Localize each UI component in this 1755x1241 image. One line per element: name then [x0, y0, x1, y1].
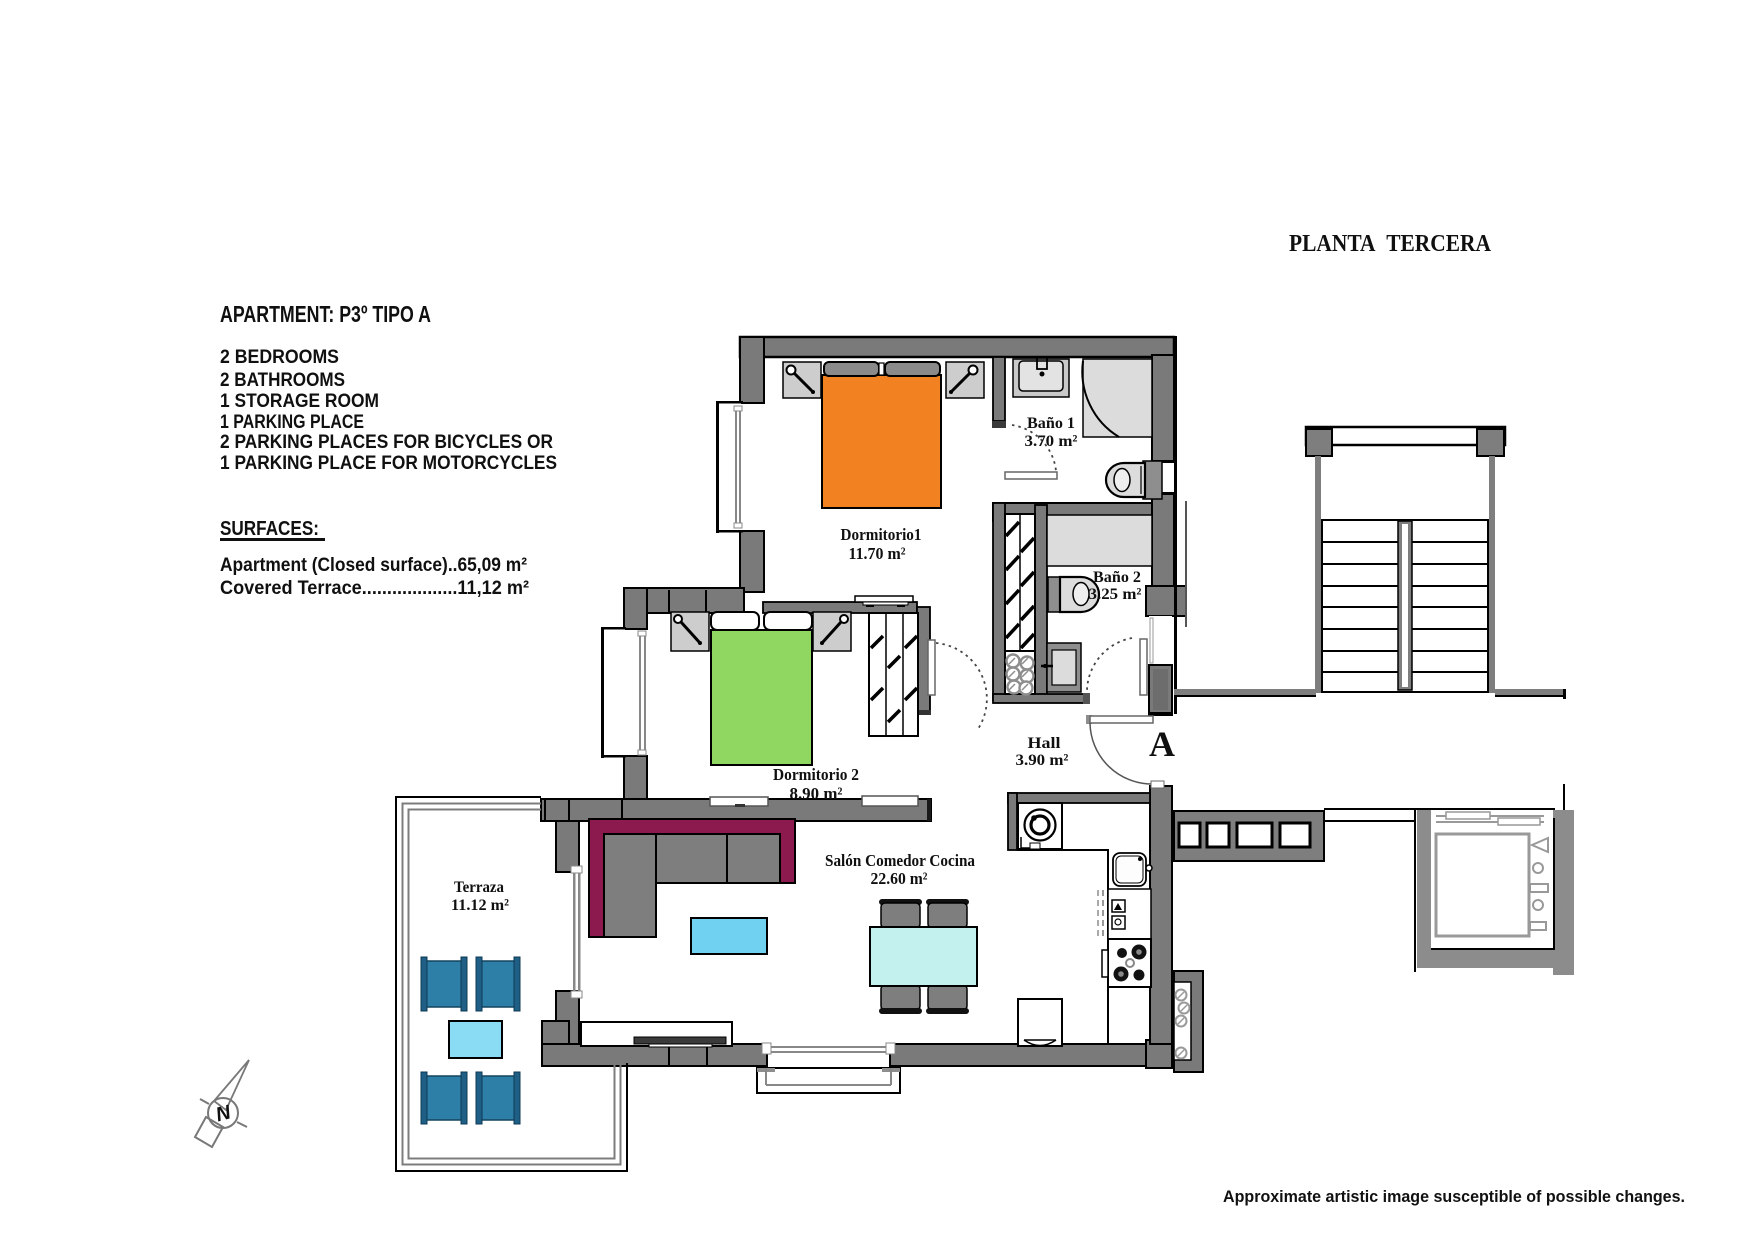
svg-text:A: A [1149, 724, 1175, 764]
svg-text:8.90 m²: 8.90 m² [790, 784, 843, 803]
svg-text:Approximate artistic image sus: Approximate artistic image susceptible o… [1223, 1187, 1685, 1206]
svg-text:Apartment (Closed surface)..65: Apartment (Closed surface)..65,09 m² [220, 555, 527, 576]
svg-text:Terraza: Terraza [454, 879, 504, 896]
svg-text:Dormitorio 2: Dormitorio 2 [773, 765, 859, 784]
svg-text:Baño 2: Baño 2 [1093, 569, 1141, 586]
svg-text:APARTMENT: P3º TIPO A: APARTMENT: P3º TIPO A [220, 301, 431, 327]
svg-text:1 PARKING PLACE FOR MOTORCYCLE: 1 PARKING PLACE FOR MOTORCYCLES [220, 453, 557, 474]
svg-text:22.60 m²: 22.60 m² [871, 869, 928, 888]
svg-text:SURFACES:: SURFACES: [220, 518, 319, 540]
svg-text:Covered Terrace...............: Covered Terrace...................11,12 … [220, 578, 529, 599]
svg-text:2 PARKING PLACES FOR BICYCLES: 2 PARKING PLACES FOR BICYCLES OR [220, 432, 553, 453]
svg-text:1 STORAGE ROOM: 1 STORAGE ROOM [220, 391, 379, 412]
svg-text:Salón Comedor Cocina: Salón Comedor Cocina [825, 851, 975, 870]
svg-text:3.25 m²: 3.25 m² [1089, 586, 1142, 603]
svg-text:Hall: Hall [1028, 735, 1062, 752]
svg-text:PLANTA TERCERA: PLANTA TERCERA [1289, 231, 1492, 257]
svg-text:2 BATHROOMS: 2 BATHROOMS [220, 370, 345, 391]
svg-text:11.70 m²: 11.70 m² [849, 544, 906, 563]
svg-text:3.70 m²: 3.70 m² [1025, 433, 1078, 450]
svg-text:Dormitorio1: Dormitorio1 [841, 525, 922, 544]
svg-text:11.12 m²: 11.12 m² [451, 897, 509, 914]
svg-text:1 PARKING PLACE: 1 PARKING PLACE [220, 412, 364, 433]
svg-text:2 BEDROOMS: 2 BEDROOMS [220, 347, 339, 368]
svg-text:3.90 m²: 3.90 m² [1016, 752, 1069, 769]
svg-text:Baño 1: Baño 1 [1027, 415, 1075, 432]
